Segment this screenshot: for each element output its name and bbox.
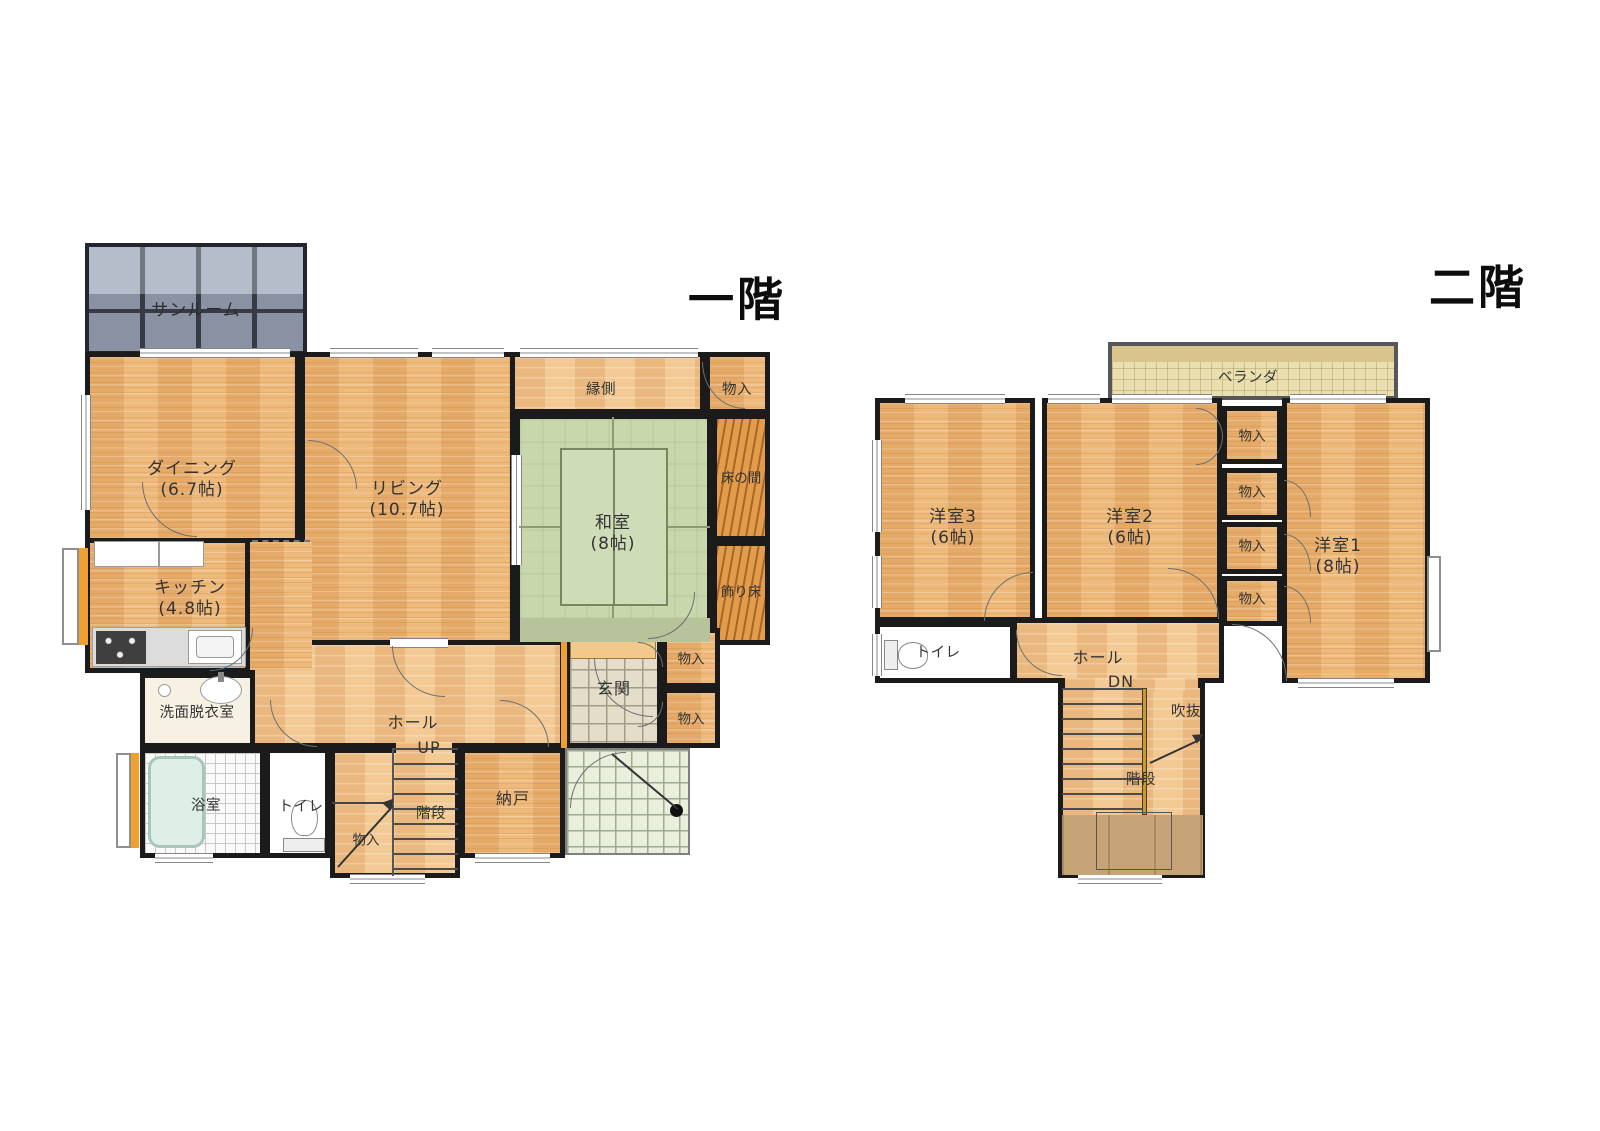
label-closet2f-1: 物入	[1239, 429, 1266, 446]
label-living: リビング (10.7帖)	[369, 479, 444, 522]
label-closet-genkan-b: 物入	[678, 712, 705, 729]
label-closet2f-4: 物入	[1239, 592, 1266, 609]
label-dining: ダイニング (6.7帖)	[147, 459, 237, 502]
label-kitchen: キッチン (4.8帖)	[154, 578, 226, 621]
stairs-2f-rail	[1142, 688, 1147, 815]
window-yoshitsu1-south	[1298, 678, 1394, 688]
window-engawa-north	[520, 348, 698, 358]
label-hall-dn: DN	[1108, 672, 1134, 692]
label-closet2f-2: 物入	[1239, 485, 1266, 502]
bay-window-bath	[116, 753, 131, 848]
window-yoshitsu2-north	[1048, 394, 1100, 404]
window-dining-west	[81, 395, 91, 510]
open-passage-kitchen	[250, 542, 312, 670]
bay-window-bath-frame	[131, 753, 139, 848]
label-stairs-1f: 階段	[416, 805, 446, 823]
counter-open-dashed-line	[252, 540, 310, 542]
label-kazaridoko: 飾り床	[721, 585, 762, 602]
label-bath: 浴室	[191, 797, 221, 815]
veranda-door-yoshitsu1	[1290, 394, 1386, 404]
label-fukinuke: 吹抜	[1171, 703, 1201, 721]
drain-circle	[158, 684, 171, 697]
label-sunroom: サンルーム	[151, 300, 241, 321]
floor-plan-canvas: 一階 サンルーム ダイニング (6.7帖) リビング (10.7帖) 縁側 物入…	[0, 0, 1600, 1131]
window-nando-south	[475, 853, 550, 863]
window-living-north-2	[432, 348, 504, 358]
label-tokonoma: 床の間	[721, 471, 762, 488]
stairs-2f-treads	[1062, 688, 1142, 815]
kitchen-counter-top	[94, 541, 204, 567]
label-yoshitsu2: 洋室2 (6帖)	[1106, 507, 1154, 550]
label-veranda: ベランダ	[1218, 369, 1278, 387]
label-senmen: 洗面脱衣室	[160, 704, 235, 722]
tatami-seam-north	[612, 417, 614, 448]
window-yoshitsu3-north	[905, 394, 1005, 404]
washbasin-faucet	[218, 672, 224, 682]
genkan-step-edge	[561, 640, 567, 748]
window-toilet-2f-west	[872, 634, 882, 676]
label-hall-2f: ホール	[1072, 648, 1123, 668]
label-closet-stairs: 物入	[353, 833, 380, 850]
toilet-tank-2f	[884, 640, 898, 670]
veranda-inner-band	[1112, 346, 1394, 362]
tatami-seam-east	[668, 526, 710, 528]
label-closet-northeast: 物入	[722, 381, 752, 399]
label-yoshitsu1: 洋室1 (8帖)	[1314, 536, 1362, 579]
label-yoshitsu3: 洋室3 (6帖)	[929, 507, 977, 550]
label-hall-1f: ホール	[387, 713, 438, 733]
window-dining-north	[140, 348, 290, 358]
veranda-door-yoshitsu2	[1112, 394, 1212, 404]
label-genkan: 玄関	[597, 679, 631, 699]
label-closet-genkan-a: 物入	[678, 652, 705, 669]
floor2-title: 二階	[1429, 259, 1527, 317]
window-yoshitsu3-west-2	[872, 556, 882, 608]
sliding-door-washitsu-west	[511, 455, 522, 565]
bay-window-yoshitsu1	[1427, 556, 1441, 652]
label-toilet-2f: トイレ	[916, 644, 961, 662]
toilet-tank-1f	[283, 838, 325, 852]
bay-window-kitchen-frame	[79, 548, 88, 645]
door-arc-yoshitsu1	[1232, 624, 1287, 681]
label-hall-up: UP	[417, 738, 440, 758]
window-stairs-2f-south	[1078, 874, 1162, 884]
bay-window-kitchen	[62, 548, 79, 645]
floor1-title: 一階	[688, 271, 786, 329]
tatami-seam-west	[519, 526, 560, 528]
stove-icon	[96, 631, 146, 664]
window-bath-south	[155, 853, 213, 863]
kitchen-counter-divider	[158, 541, 160, 567]
label-closet2f-3: 物入	[1239, 539, 1266, 556]
label-toilet-1f: トイレ	[279, 798, 324, 816]
room-sunroom	[85, 243, 307, 355]
label-stairs-2f: 階段	[1126, 771, 1156, 789]
stairs-2f-landing-outline	[1096, 812, 1172, 870]
label-engawa: 縁側	[586, 381, 616, 399]
label-washitsu: 和室 (8帖)	[590, 513, 635, 556]
window-living-north-1	[330, 348, 418, 358]
window-yoshitsu3-west-1	[872, 440, 882, 532]
label-nando: 納戸	[496, 789, 530, 809]
